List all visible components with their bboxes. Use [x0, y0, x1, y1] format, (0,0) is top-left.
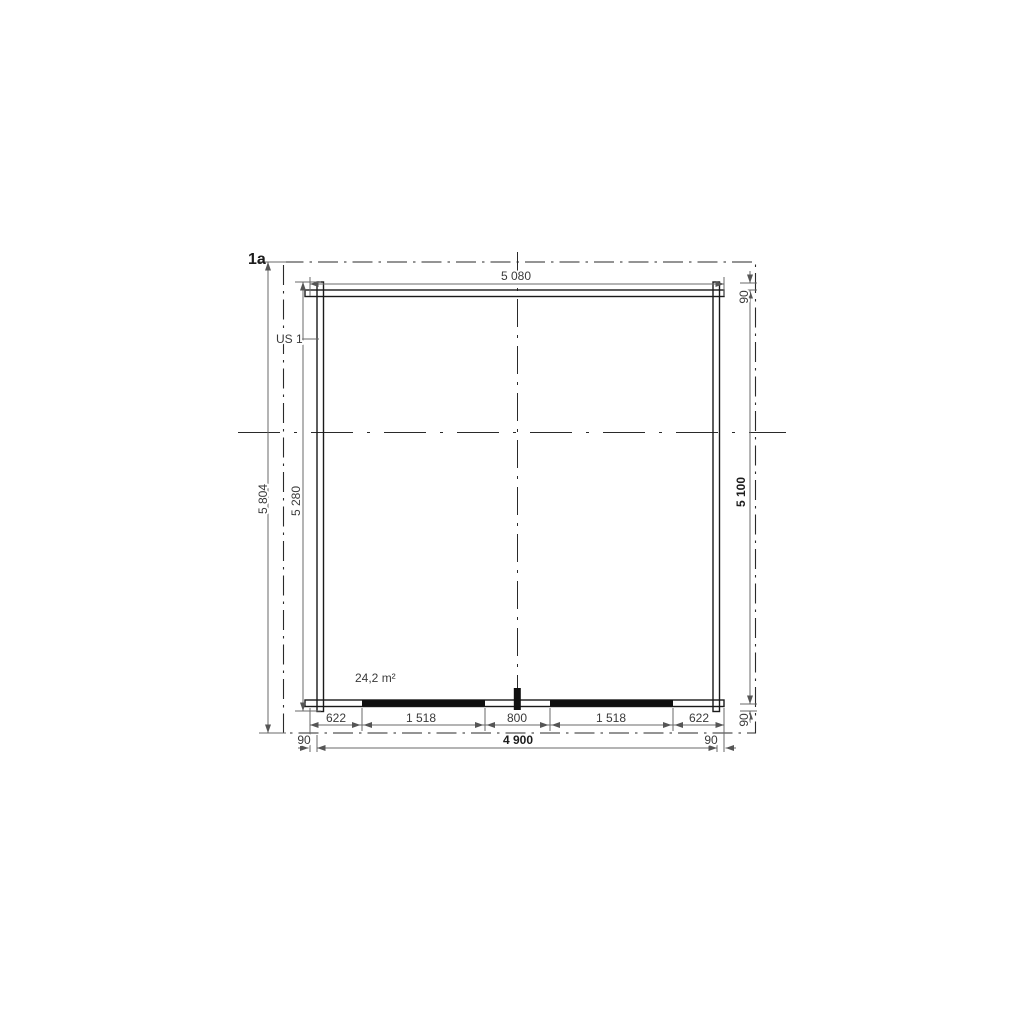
dim-right-top-offset: 90 [737, 290, 751, 304]
dim-bottom-right-offset: 90 [704, 733, 718, 747]
top-wall [305, 290, 724, 297]
dim-bottom-segment-3: 800 [507, 711, 527, 725]
section-marker-label: 1a [248, 251, 266, 268]
right-wall [713, 282, 720, 712]
dim-top-width: 5 080 [501, 269, 531, 283]
left-glazing-band [362, 700, 485, 706]
dim-bottom-segment-1: 622 [326, 711, 346, 725]
door-center-post [514, 688, 521, 710]
dim-wall-height: 5 280 [289, 486, 303, 516]
area-label: 24,2 m² [355, 671, 396, 685]
right-glazing-band [550, 700, 673, 706]
wall-unit-label: US 1 [276, 332, 303, 346]
floor-plan-drawing: 5 080 5 804 5 280 90 5 100 90 622 1 518 … [0, 0, 1024, 1024]
dim-bottom-segment-5: 622 [689, 711, 709, 725]
roof-outline [284, 262, 756, 733]
dim-bottom-segment-4: 1 518 [596, 711, 626, 725]
dim-inner-height: 5 100 [734, 477, 748, 507]
dim-outer-height: 5 804 [256, 484, 270, 514]
dim-bottom-left-offset: 90 [297, 733, 311, 747]
floor-plan-page: 5 080 5 804 5 280 90 5 100 90 622 1 518 … [0, 0, 1024, 1024]
dim-bottom-total: 4 900 [503, 733, 533, 747]
dim-right-bottom-offset: 90 [737, 713, 751, 727]
dim-bottom-segment-2: 1 518 [406, 711, 436, 725]
left-wall [317, 282, 324, 712]
